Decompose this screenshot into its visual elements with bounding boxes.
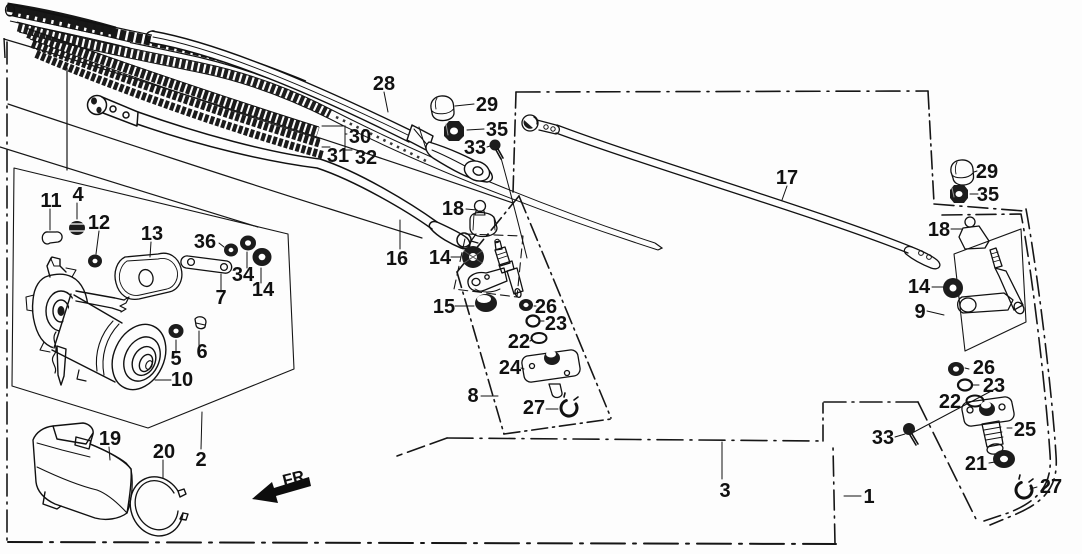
svg-text:27: 27 — [523, 397, 545, 419]
svg-text:23: 23 — [545, 313, 567, 335]
svg-text:18: 18 — [442, 198, 464, 220]
svg-text:1: 1 — [863, 486, 874, 508]
svg-text:36: 36 — [194, 231, 216, 253]
svg-text:7: 7 — [215, 287, 226, 309]
svg-text:11: 11 — [40, 190, 61, 212]
svg-text:28: 28 — [373, 73, 395, 95]
svg-text:23: 23 — [983, 375, 1005, 397]
svg-text:30: 30 — [349, 126, 371, 148]
svg-text:19: 19 — [99, 428, 121, 450]
svg-text:17: 17 — [776, 167, 798, 189]
svg-text:31: 31 — [327, 145, 349, 167]
svg-text:3: 3 — [719, 480, 730, 502]
svg-text:33: 33 — [464, 137, 486, 159]
svg-text:10: 10 — [171, 369, 193, 391]
svg-text:32: 32 — [355, 147, 377, 169]
svg-text:9: 9 — [914, 301, 925, 323]
svg-text:21: 21 — [965, 453, 987, 475]
svg-text:12: 12 — [88, 212, 110, 234]
svg-text:14: 14 — [429, 247, 452, 269]
svg-text:25: 25 — [1014, 419, 1036, 441]
svg-text:6: 6 — [196, 341, 207, 363]
svg-text:35: 35 — [486, 119, 508, 141]
svg-text:14: 14 — [908, 276, 931, 298]
svg-text:24: 24 — [499, 357, 522, 379]
svg-text:8: 8 — [467, 385, 478, 407]
svg-text:14: 14 — [252, 279, 275, 301]
svg-text:29: 29 — [976, 161, 998, 183]
svg-text:15: 15 — [433, 296, 455, 318]
svg-text:29: 29 — [476, 94, 498, 116]
svg-text:13: 13 — [141, 223, 163, 245]
svg-text:35: 35 — [977, 184, 999, 206]
svg-text:22: 22 — [939, 391, 961, 413]
svg-text:27: 27 — [1040, 476, 1062, 498]
svg-text:16: 16 — [386, 248, 408, 270]
svg-text:33: 33 — [872, 427, 894, 449]
svg-text:2: 2 — [195, 449, 206, 471]
svg-text:4: 4 — [72, 184, 84, 206]
svg-text:22: 22 — [508, 331, 530, 353]
svg-text:20: 20 — [153, 441, 175, 463]
svg-text:18: 18 — [928, 219, 950, 241]
svg-text:5: 5 — [170, 348, 181, 370]
